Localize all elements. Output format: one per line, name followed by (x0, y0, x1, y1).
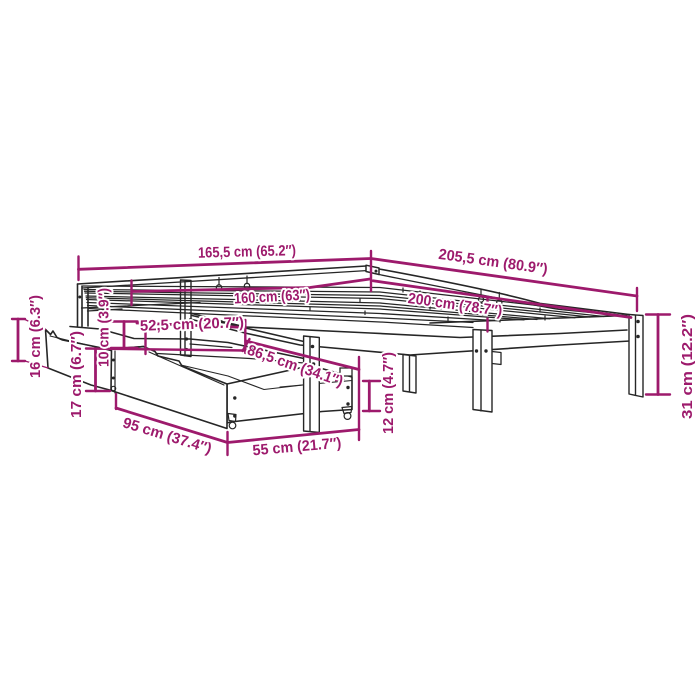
svg-text:16 cm (6.3″): 16 cm (6.3″) (27, 295, 44, 378)
svg-text:165,5 cm (65.2″): 165,5 cm (65.2″) (198, 242, 296, 262)
svg-text:31 cm (12.2″): 31 cm (12.2″) (679, 314, 696, 419)
svg-text:17 cm (6.7″): 17 cm (6.7″) (68, 331, 85, 418)
svg-text:10 cm (3.9″): 10 cm (3.9″) (95, 288, 112, 367)
svg-text:52,5 cm (20.7″): 52,5 cm (20.7″) (140, 314, 245, 335)
svg-text:12 cm (4.7″): 12 cm (4.7″) (380, 352, 397, 434)
